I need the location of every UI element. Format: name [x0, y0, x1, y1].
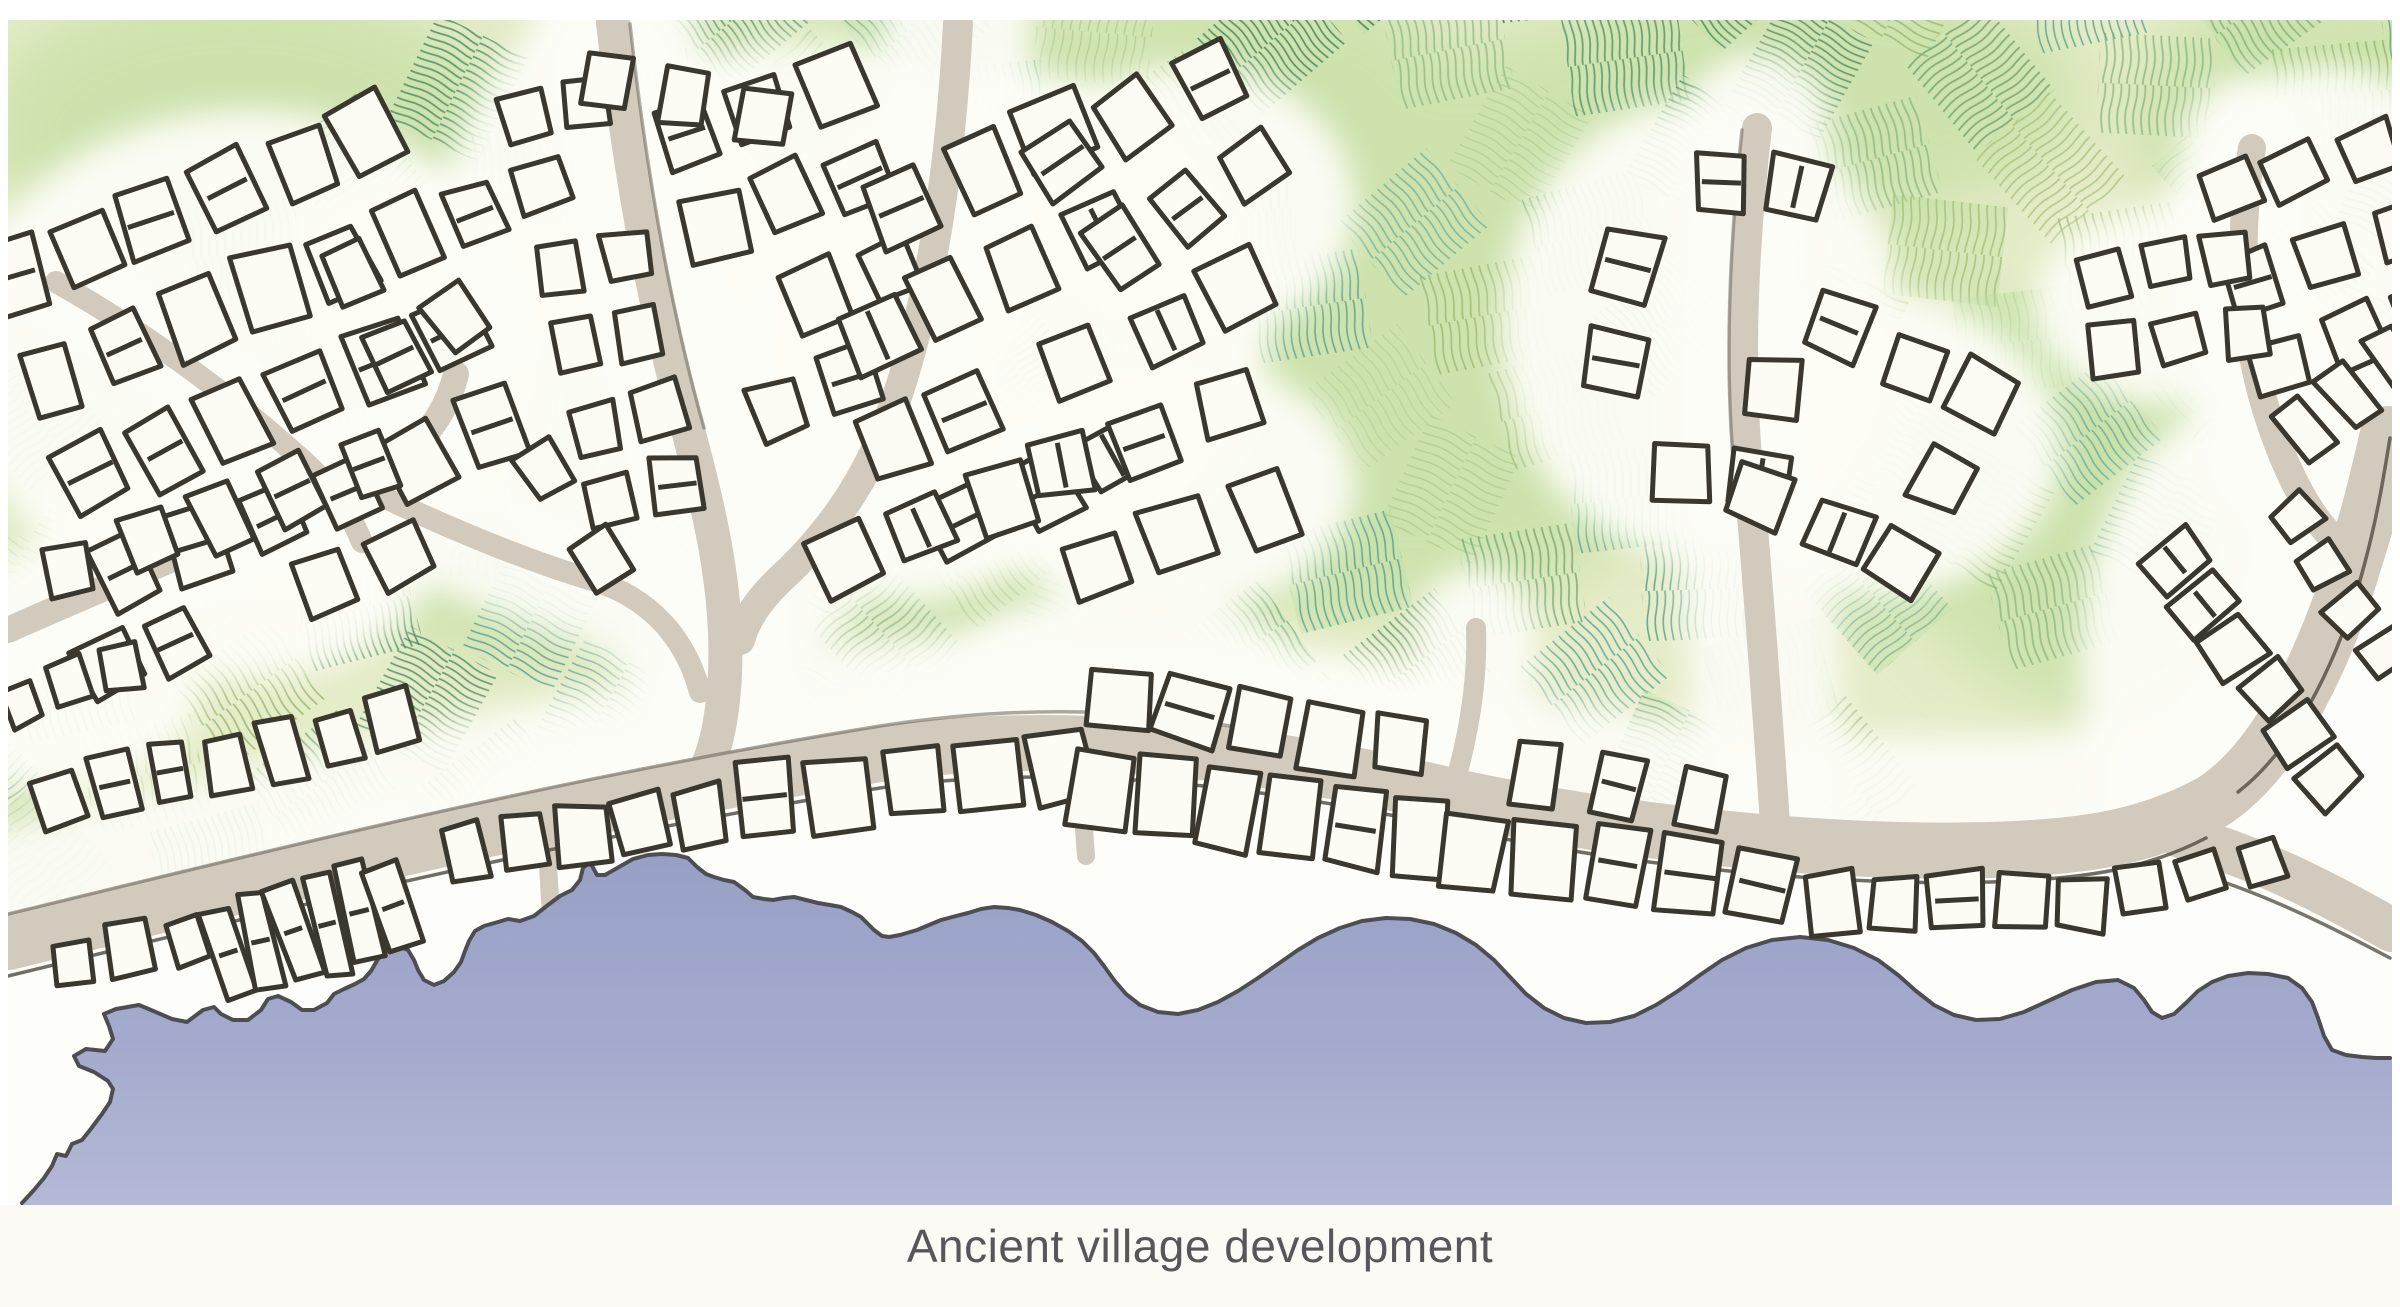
- building: [1744, 356, 1802, 421]
- building: [883, 746, 944, 816]
- building: [580, 51, 633, 112]
- building: [734, 87, 792, 147]
- building: [1509, 737, 1564, 811]
- building: [1135, 754, 1197, 836]
- building: [532, 239, 586, 300]
- building: [611, 304, 664, 364]
- building: [1652, 443, 1711, 502]
- building: [2199, 228, 2253, 286]
- building: [1323, 783, 1390, 872]
- building: [1926, 868, 1985, 928]
- map-illustration: Ancient village development: [0, 0, 2400, 1307]
- building: [649, 452, 704, 515]
- building: [679, 189, 753, 266]
- building: [2223, 305, 2271, 361]
- building: [1580, 326, 1649, 398]
- building: [1805, 868, 1860, 936]
- building: [2054, 875, 2107, 934]
- building: [499, 811, 549, 870]
- building: [1258, 773, 1325, 861]
- building: [598, 227, 654, 282]
- building: [735, 757, 796, 837]
- building: [1027, 430, 1096, 501]
- building: [2088, 320, 2139, 379]
- building: [40, 539, 96, 599]
- building: [672, 781, 730, 850]
- building: [1674, 766, 1727, 832]
- building: [953, 739, 1024, 811]
- building: [97, 642, 145, 696]
- building: [1653, 832, 1722, 917]
- building: [551, 315, 601, 373]
- map-layers: [0, 0, 2400, 1205]
- building: [583, 472, 637, 529]
- building: [1065, 749, 1137, 834]
- building: [1228, 686, 1291, 756]
- building: [2114, 859, 2168, 916]
- building: [803, 754, 875, 836]
- building: [2141, 236, 2194, 287]
- building: [1694, 153, 1745, 214]
- ancient-village-map-figure: Ancient village development: [0, 0, 2400, 1307]
- building: [1511, 820, 1577, 901]
- map-caption: Ancient village development: [907, 1220, 1493, 1272]
- building: [1085, 667, 1155, 732]
- building: [1372, 713, 1427, 775]
- building: [1869, 876, 1917, 931]
- building: [101, 916, 156, 979]
- building: [1296, 701, 1365, 777]
- building: [657, 66, 709, 129]
- building: [1995, 872, 2050, 931]
- building: [554, 801, 612, 867]
- building: [49, 939, 96, 988]
